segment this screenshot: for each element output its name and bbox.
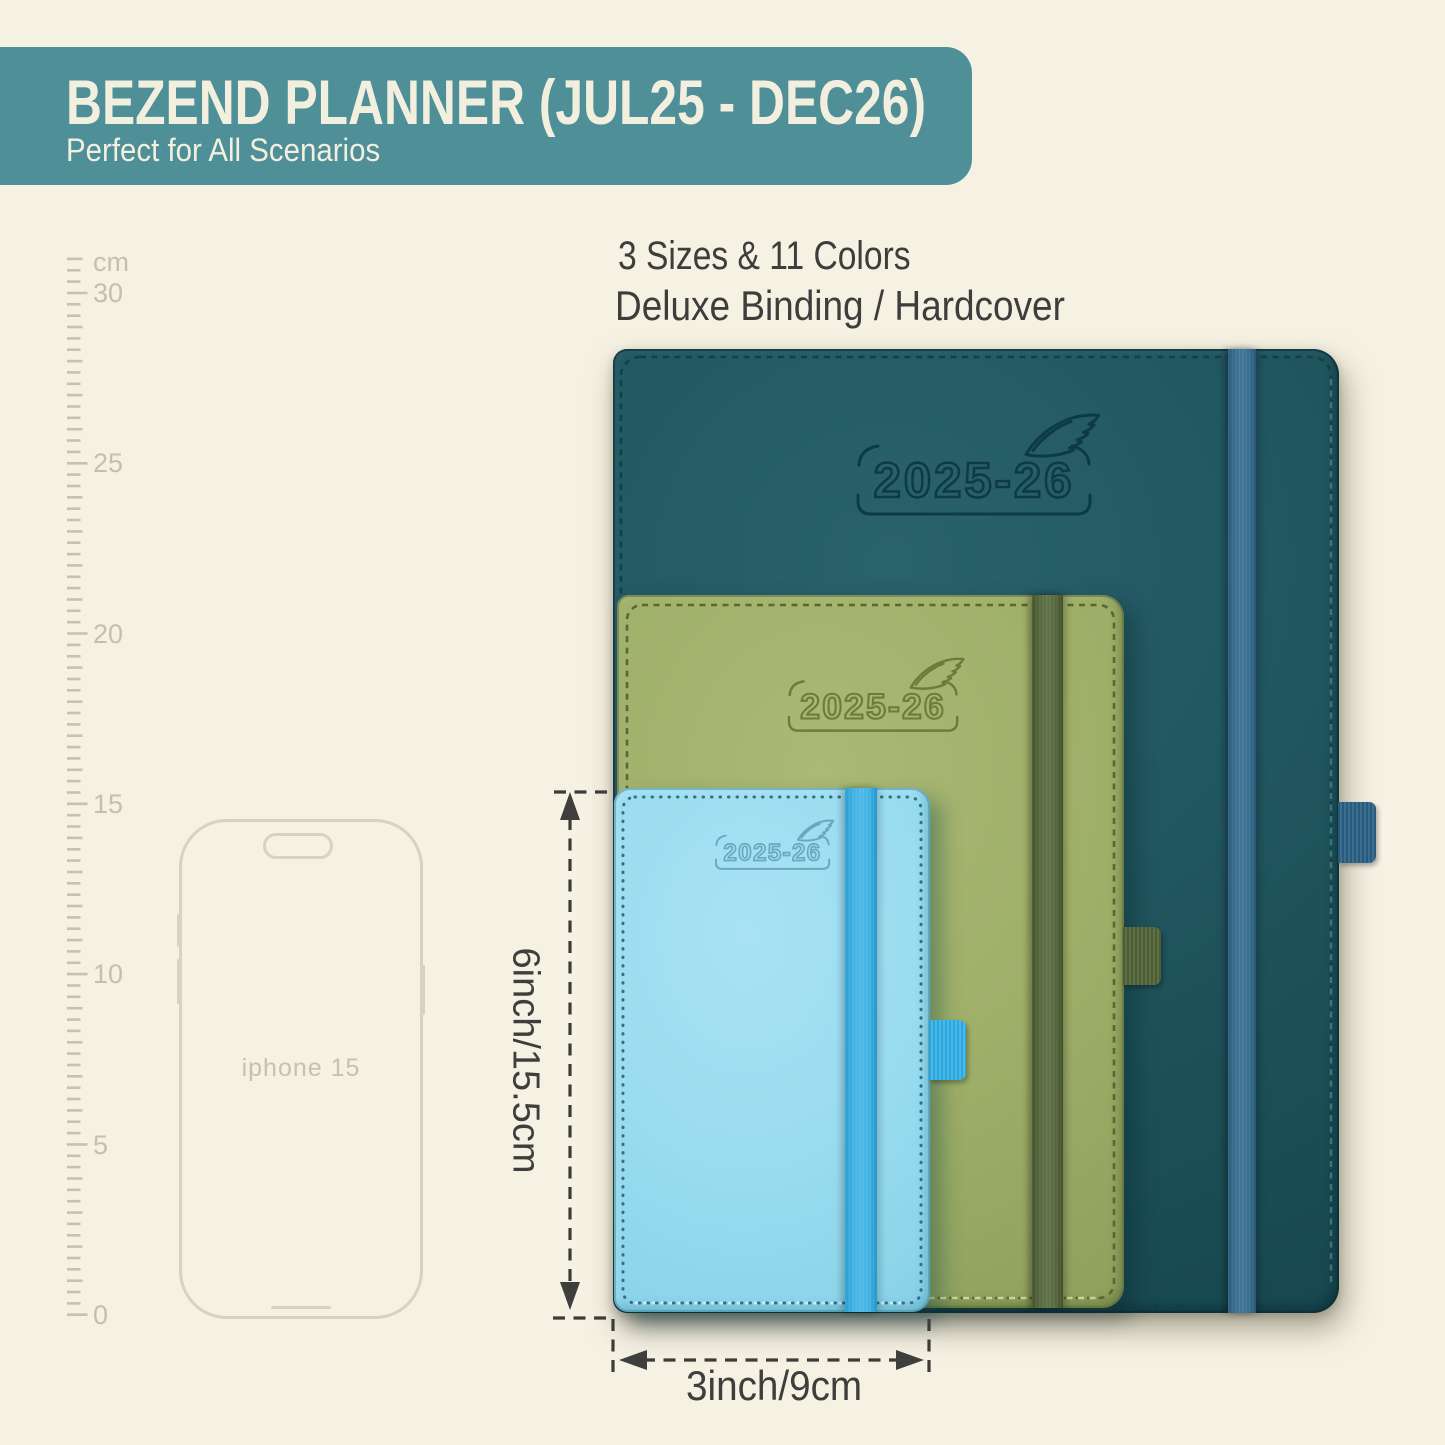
svg-text:15: 15 [93,789,123,819]
svg-text:30: 30 [93,278,123,308]
svg-text:5: 5 [93,1130,108,1160]
svg-text:25: 25 [93,448,123,478]
svg-text:cm: cm [93,250,129,277]
svg-text:2025-26: 2025-26 [800,686,946,726]
svg-text:0: 0 [93,1300,108,1330]
svg-text:2025-26: 2025-26 [724,840,822,867]
svg-text:2025-26: 2025-26 [874,454,1075,508]
svg-text:10: 10 [93,959,123,989]
svg-text:20: 20 [93,619,123,649]
